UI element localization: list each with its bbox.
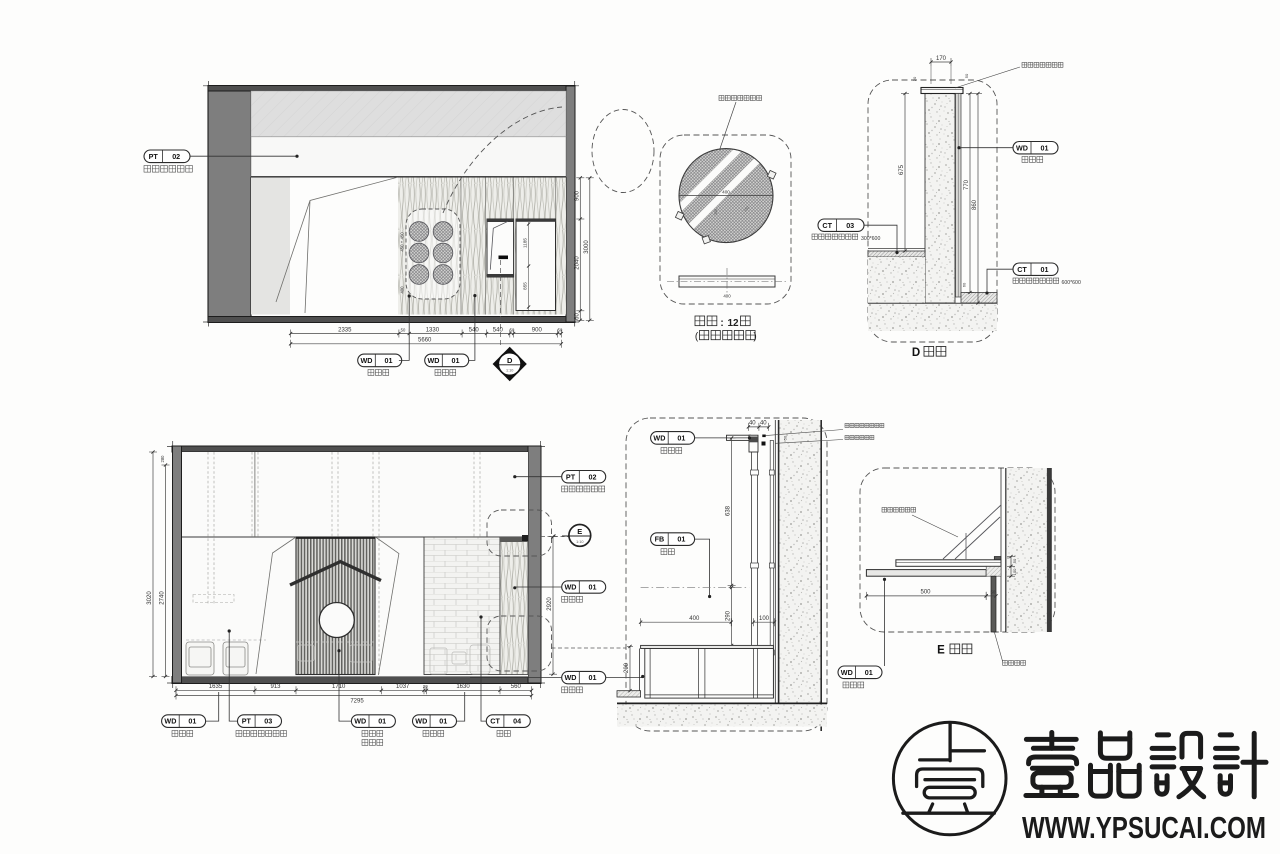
svg-text:WD: WD <box>565 583 577 592</box>
svg-text:WD: WD <box>361 356 373 365</box>
svg-text:01: 01 <box>439 717 447 726</box>
svg-text:50: 50 <box>510 327 515 332</box>
svg-text:01: 01 <box>677 535 685 544</box>
svg-text:CT: CT <box>822 221 832 230</box>
svg-text:400: 400 <box>722 189 730 194</box>
svg-text:500: 500 <box>920 590 931 596</box>
svg-text:E: E <box>937 645 945 657</box>
svg-text:50: 50 <box>401 327 406 332</box>
svg-text:50: 50 <box>991 590 996 595</box>
svg-text:913: 913 <box>270 684 281 690</box>
svg-text:100: 100 <box>1012 568 1017 575</box>
svg-text:WD: WD <box>164 717 176 726</box>
svg-text:1330: 1330 <box>426 327 440 333</box>
svg-text:01: 01 <box>677 434 685 443</box>
svg-text:1630: 1630 <box>456 684 470 690</box>
svg-text:WD: WD <box>841 668 853 677</box>
svg-text:01: 01 <box>188 717 196 726</box>
svg-text:04: 04 <box>513 717 521 726</box>
svg-text::: : <box>720 318 723 329</box>
svg-text:2335: 2335 <box>338 327 352 333</box>
svg-text:01: 01 <box>589 673 597 682</box>
svg-text:PT: PT <box>149 152 159 161</box>
svg-text:560: 560 <box>511 684 522 690</box>
svg-text:1:10: 1:10 <box>576 540 583 544</box>
svg-text:2740: 2740 <box>160 591 166 605</box>
svg-text:D: D <box>507 356 513 365</box>
svg-text:100: 100 <box>759 616 770 622</box>
svg-text:540: 540 <box>493 327 504 333</box>
svg-text:540: 540 <box>469 327 480 333</box>
svg-text:5660: 5660 <box>418 338 432 344</box>
svg-text:170: 170 <box>936 56 947 62</box>
svg-text:CT: CT <box>490 717 500 726</box>
svg-text:1037: 1037 <box>396 684 410 690</box>
svg-text:280: 280 <box>160 455 165 463</box>
svg-text:02: 02 <box>172 152 180 161</box>
svg-text:01: 01 <box>378 717 386 726</box>
svg-text:03: 03 <box>264 717 272 726</box>
svg-text:01: 01 <box>1041 143 1049 152</box>
svg-text:50: 50 <box>783 435 788 440</box>
svg-text:400: 400 <box>400 286 405 294</box>
svg-text:2920: 2920 <box>547 597 553 611</box>
svg-text:12: 12 <box>727 318 739 329</box>
svg-text:900: 900 <box>574 190 580 201</box>
svg-text:WD: WD <box>354 717 366 726</box>
svg-text:150: 150 <box>714 209 718 215</box>
svg-text:860: 860 <box>972 199 978 210</box>
svg-text:WD: WD <box>653 434 665 443</box>
svg-text:400: 400 <box>689 616 700 622</box>
svg-text:PT: PT <box>242 717 252 726</box>
svg-text:WWW.YPSUCAI.COM: WWW.YPSUCAI.COM <box>1022 810 1266 845</box>
svg-text:40: 40 <box>760 421 767 427</box>
svg-text:638: 638 <box>726 505 732 516</box>
svg-text:03: 03 <box>846 221 854 230</box>
svg-text:900: 900 <box>532 327 543 333</box>
svg-text:20: 20 <box>912 76 917 81</box>
svg-text:01: 01 <box>865 668 873 677</box>
svg-text:400: 400 <box>723 294 731 299</box>
svg-text:600*600: 600*600 <box>1062 280 1081 286</box>
svg-text:855: 855 <box>523 282 528 290</box>
svg-text:450 + 450: 450 + 450 <box>400 232 405 252</box>
svg-text:50: 50 <box>558 327 563 332</box>
svg-text:WD: WD <box>1016 143 1028 152</box>
svg-text:290: 290 <box>726 610 732 621</box>
svg-text:): ) <box>753 332 756 343</box>
svg-text:1:10: 1:10 <box>506 369 513 373</box>
svg-text:WD: WD <box>565 673 577 682</box>
svg-text:770: 770 <box>964 179 970 190</box>
svg-text:01: 01 <box>385 356 393 365</box>
svg-text:50: 50 <box>964 73 969 78</box>
svg-text:CT: CT <box>1017 265 1027 274</box>
svg-text:3000: 3000 <box>584 240 590 254</box>
svg-text:02: 02 <box>589 472 597 481</box>
svg-text:WD: WD <box>415 717 427 726</box>
svg-text:01: 01 <box>1041 265 1049 274</box>
svg-text:50: 50 <box>1012 558 1017 563</box>
svg-text:40: 40 <box>749 421 756 427</box>
svg-text:20: 20 <box>423 684 428 689</box>
svg-text:WD: WD <box>428 356 440 365</box>
svg-text:01: 01 <box>452 356 460 365</box>
svg-text:01: 01 <box>589 583 597 592</box>
svg-text:E: E <box>577 527 582 536</box>
svg-text:60: 60 <box>962 282 967 287</box>
svg-text:1185: 1185 <box>523 238 528 248</box>
svg-text:2040: 2040 <box>574 256 580 270</box>
svg-text:60: 60 <box>574 313 580 320</box>
svg-text:675: 675 <box>899 164 905 175</box>
svg-text:300*600: 300*600 <box>861 236 880 242</box>
svg-text:D: D <box>912 347 920 359</box>
svg-text:7295: 7295 <box>350 699 364 705</box>
svg-text:200: 200 <box>624 662 630 673</box>
svg-text:FB: FB <box>655 535 665 544</box>
svg-text:PT: PT <box>566 472 576 481</box>
svg-text:3020: 3020 <box>147 591 153 605</box>
svg-text:1635: 1635 <box>209 684 223 690</box>
